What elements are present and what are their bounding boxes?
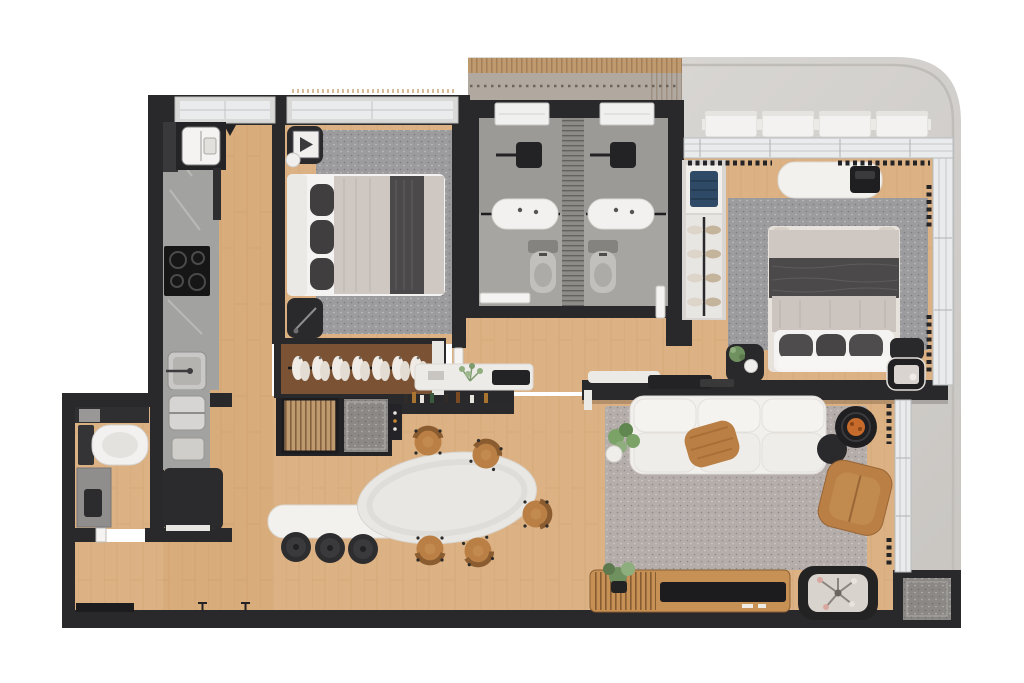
pillow (310, 258, 334, 290)
bathrooms (479, 103, 668, 318)
tall-cabinet (163, 122, 178, 172)
nightstand-plain (287, 298, 323, 338)
nightstand-art (286, 126, 323, 167)
entry-niche (276, 394, 392, 456)
glazing-top (684, 138, 953, 158)
toilet (528, 240, 558, 293)
bed-runner (390, 176, 424, 294)
counter-item (172, 438, 204, 460)
pillow (310, 184, 334, 216)
bathroom-left (479, 118, 562, 306)
plant-pot (606, 446, 622, 462)
bath-left-door (480, 293, 530, 303)
desk-bench (778, 162, 882, 198)
ledge-item (428, 371, 444, 380)
tv-panel (660, 582, 786, 602)
entry-threshold (76, 603, 134, 612)
floor-plan (0, 0, 1024, 683)
vanity (492, 199, 558, 229)
headboard (287, 174, 307, 296)
double-bed (768, 226, 900, 372)
island-stool (315, 533, 345, 563)
shelf-box (79, 409, 100, 422)
bath-right-door (656, 286, 665, 318)
wall-end-cap (584, 390, 592, 410)
refrigerator (163, 468, 223, 530)
nightstand-tray (887, 338, 925, 390)
ball-lamp (745, 360, 758, 373)
duvet-bottom (772, 296, 896, 332)
door-leaf (96, 528, 106, 542)
wall-guestbath-left (62, 393, 75, 615)
pillow-white (778, 356, 890, 370)
slatted-rack-slats (283, 399, 337, 452)
island-stool (348, 534, 378, 564)
wall-bedroom-right (452, 120, 466, 348)
shelf-unit (682, 160, 726, 320)
left-bedroom-window (287, 97, 458, 123)
nightstand-plant (726, 344, 764, 382)
duct-hatch (562, 118, 584, 306)
floor-plan-canvas (0, 0, 1024, 683)
shelf-board (398, 402, 514, 414)
pillow (310, 220, 334, 254)
wall-guestbath-right (150, 407, 164, 532)
shower-head (516, 142, 542, 168)
living-glazing (895, 400, 911, 572)
ac-unit (873, 111, 931, 137)
kitchen-window (175, 97, 275, 123)
toilet (588, 240, 618, 293)
laptop (850, 166, 880, 193)
double-bed (287, 174, 445, 296)
orange-bowl (847, 418, 865, 436)
bathroom-right (584, 118, 668, 318)
modular-sofa (630, 396, 826, 474)
deck-stripes (650, 73, 682, 104)
ac-unit (759, 111, 817, 137)
duvet (334, 176, 392, 294)
wall-master-stub (666, 318, 692, 346)
wall-left (148, 95, 164, 398)
deck-hatch (468, 58, 682, 73)
refrigerator-edge (166, 525, 210, 531)
media-console (590, 562, 790, 612)
basin (84, 489, 102, 517)
ledge-tray (492, 370, 530, 385)
doormat-texture (344, 399, 388, 452)
dining-chair (523, 500, 550, 527)
dining-chair (416, 536, 443, 563)
counter-panel (213, 168, 221, 220)
ac-unit (816, 111, 874, 137)
glazing-right (933, 158, 953, 385)
wall-bedroom-left (272, 120, 285, 344)
ball-lamp (286, 153, 300, 167)
duvet-top (769, 230, 899, 260)
duvet-tail (424, 176, 444, 294)
vanity (588, 199, 654, 229)
island-stool (281, 532, 311, 562)
dining-chair (414, 428, 441, 455)
kitchen (163, 122, 226, 531)
wall-bottom (62, 610, 912, 628)
ac-unit (702, 111, 760, 137)
side-doormat (903, 578, 951, 620)
service-zone (468, 58, 682, 104)
shower-head (610, 142, 636, 168)
flower-planter (798, 566, 878, 620)
console-remote (700, 379, 734, 387)
